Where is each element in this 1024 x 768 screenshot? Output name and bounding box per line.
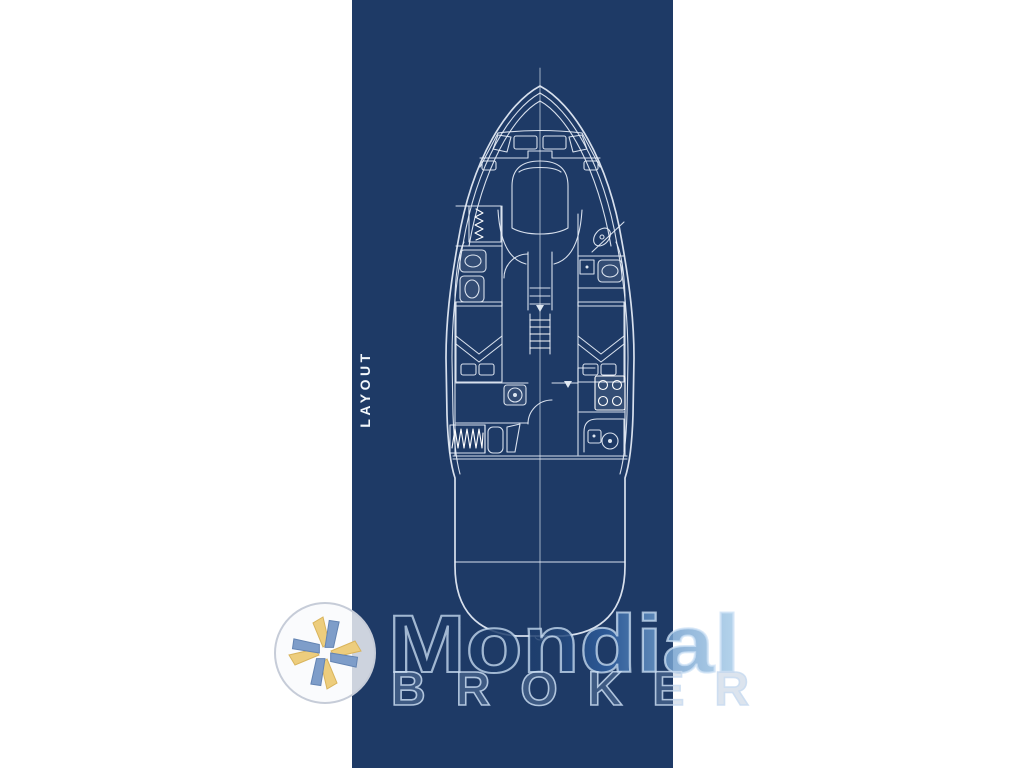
hull-outline <box>446 68 634 637</box>
port-aft-storage <box>450 385 528 453</box>
page: LAYOUT <box>0 0 1024 768</box>
pinwheel-arms <box>288 616 362 690</box>
layout-panel: LAYOUT <box>352 0 673 768</box>
starboard-bathroom <box>578 214 624 306</box>
starboard-guest-cabin <box>552 302 624 383</box>
galley <box>528 368 625 455</box>
port-guest-cabin <box>456 302 528 383</box>
yacht-deck-plan-drawing <box>352 0 673 768</box>
companionway-stairs <box>504 252 552 354</box>
